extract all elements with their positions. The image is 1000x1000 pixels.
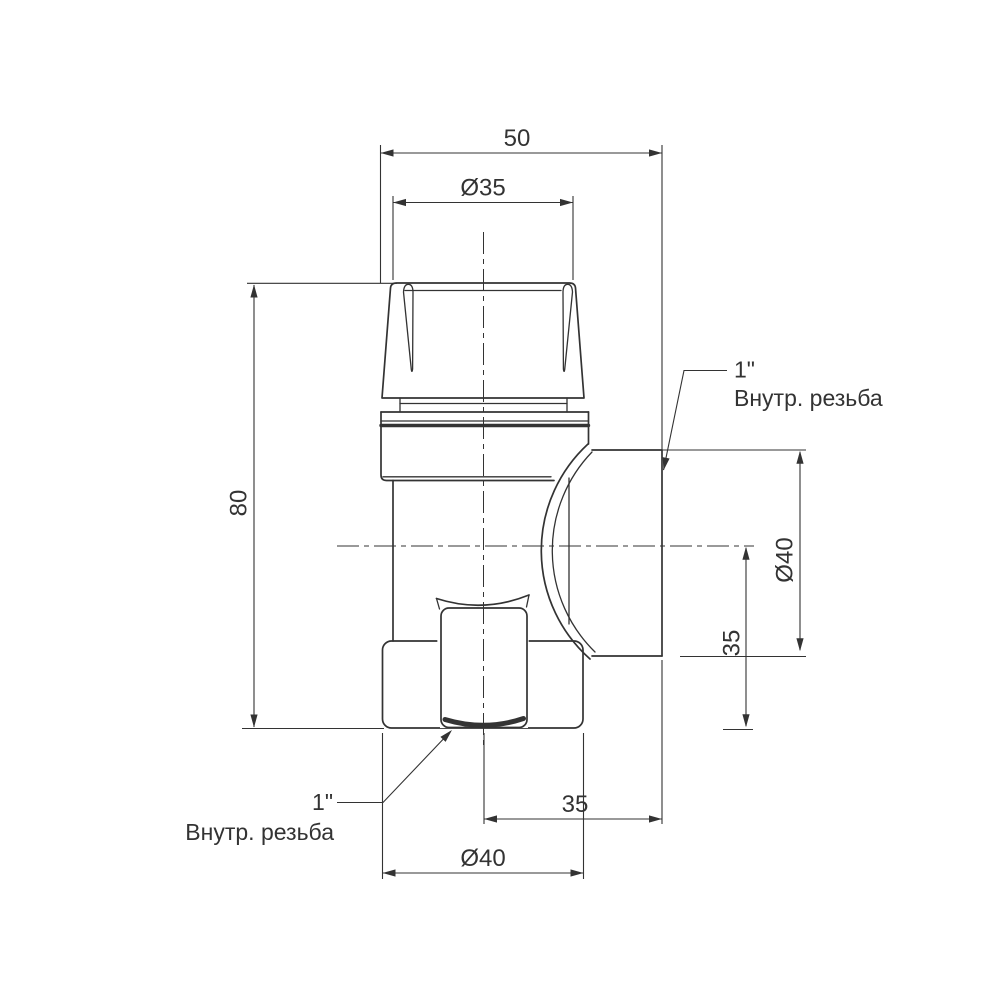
- dim-80-arrow-top: [250, 285, 257, 298]
- drawing-sheet: 50 Ø35 80 Ø40 35 35 Ø40 1" Внутр. резьба…: [0, 0, 1000, 1000]
- bottom-boss-mask: [436, 594, 529, 728]
- bottom-thread-size-text: 1": [312, 789, 333, 815]
- dim-35side-arrow-bottom: [742, 714, 749, 727]
- dim-35bottom-text: 35: [562, 791, 589, 818]
- dim-80-text: 80: [226, 490, 253, 517]
- dim-40bottom-arrow-left: [383, 869, 396, 876]
- dim-40side-arrow-bottom: [796, 638, 803, 651]
- dim-35cap-arrow-left: [393, 199, 406, 206]
- dim-35side-text: 35: [719, 630, 746, 657]
- dim-50-arrow-left: [381, 149, 394, 156]
- dim-40side-text: Ø40: [772, 537, 799, 582]
- dim-50-text: 50: [504, 125, 531, 152]
- dim-35bottom-arrow-left: [484, 815, 497, 822]
- cap-knurl-groove-right: [563, 284, 573, 371]
- dim-35cap-text: Ø35: [460, 175, 505, 202]
- dim-80-arrow-bottom: [250, 715, 257, 728]
- dim-35side-arrow-top: [742, 547, 749, 560]
- dim-35bottom-arrow-right: [649, 815, 662, 822]
- flange-left-edge: [381, 412, 554, 481]
- dim-40side-arrow-top: [796, 451, 803, 464]
- dim-35cap-arrow-right: [560, 199, 573, 206]
- side-thread-size-text: 1": [734, 357, 755, 383]
- dim-40bottom-arrow-right: [571, 869, 584, 876]
- leader-bottom-thread: [337, 732, 451, 803]
- valve-technical-drawing: 50 Ø35 80 Ø40 35 35 Ø40 1" Внутр. резьба…: [0, 0, 1000, 1000]
- dim-50-arrow-right: [649, 149, 662, 156]
- dim-40bottom-text: Ø40: [460, 845, 505, 872]
- leader-side-thread-arrow: [663, 457, 670, 470]
- leader-side-thread: [664, 371, 728, 471]
- cap-knurl-groove-left: [404, 284, 414, 371]
- side-thread-label-text: Внутр. резьба: [734, 385, 883, 411]
- bottom-thread-label-text: Внутр. резьба: [185, 819, 334, 845]
